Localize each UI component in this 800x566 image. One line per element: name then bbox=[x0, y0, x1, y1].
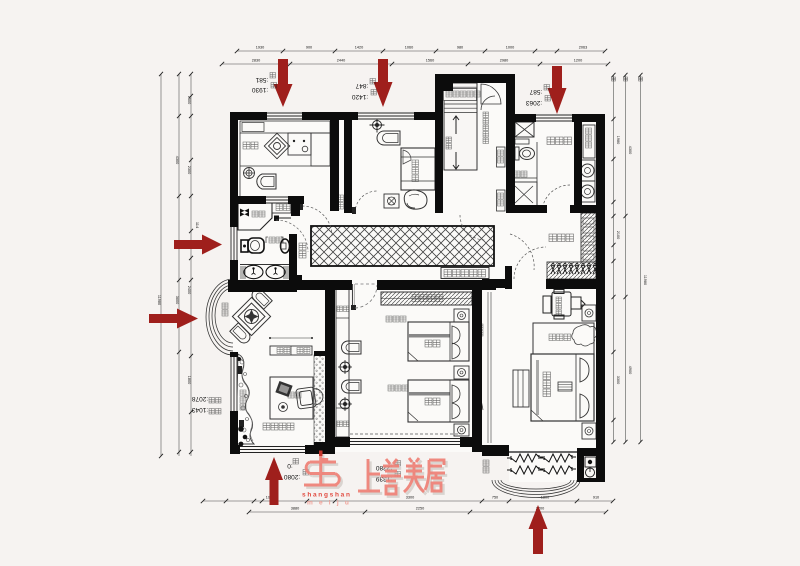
svg-text::2080: :2080 bbox=[283, 473, 300, 480]
svg-text:910: 910 bbox=[593, 496, 599, 500]
svg-text:1560: 1560 bbox=[426, 59, 434, 63]
svg-text:1060: 1060 bbox=[405, 46, 413, 50]
svg-text:1500: 1500 bbox=[187, 96, 191, 104]
svg-text:3600: 3600 bbox=[175, 296, 179, 304]
svg-text::2078: :2078 bbox=[191, 395, 208, 402]
svg-text:1930: 1930 bbox=[256, 46, 264, 50]
svg-text:2830: 2830 bbox=[252, 59, 260, 63]
svg-text::587: :587 bbox=[529, 88, 542, 95]
svg-text::1043: :1043 bbox=[191, 406, 208, 413]
svg-text::2063: :2063 bbox=[525, 99, 542, 106]
svg-text:4300: 4300 bbox=[175, 156, 179, 164]
svg-text:4300: 4300 bbox=[628, 146, 632, 154]
svg-text:2980: 2980 bbox=[500, 59, 508, 63]
svg-text:2063: 2063 bbox=[579, 46, 587, 50]
svg-text:1200: 1200 bbox=[574, 59, 582, 63]
svg-text:3300: 3300 bbox=[406, 496, 414, 500]
svg-text::0: :0 bbox=[287, 462, 293, 469]
svg-text:2100: 2100 bbox=[616, 231, 620, 239]
svg-text:shangshan: shangshan bbox=[302, 492, 352, 499]
svg-text:11980: 11980 bbox=[643, 275, 647, 285]
svg-text:1800: 1800 bbox=[187, 376, 191, 384]
svg-text:900: 900 bbox=[306, 46, 312, 50]
svg-text:2300: 2300 bbox=[187, 166, 191, 174]
svg-text:4900: 4900 bbox=[628, 366, 632, 374]
svg-text:3300: 3300 bbox=[616, 376, 620, 384]
svg-text:1980: 1980 bbox=[616, 136, 620, 144]
svg-text:2250: 2250 bbox=[416, 507, 424, 511]
svg-text:750: 750 bbox=[492, 496, 498, 500]
svg-text:114: 114 bbox=[195, 222, 200, 229]
svg-text:2400: 2400 bbox=[187, 286, 191, 294]
svg-text:1000: 1000 bbox=[506, 46, 514, 50]
svg-text::581: :581 bbox=[255, 76, 268, 83]
svg-text:m e i j u: m e i j u bbox=[307, 500, 351, 507]
svg-text::1420: :1420 bbox=[351, 93, 368, 100]
svg-text:3880: 3880 bbox=[291, 507, 299, 511]
svg-text:1420: 1420 bbox=[355, 46, 363, 50]
svg-text::1930: :1930 bbox=[251, 86, 268, 93]
svg-text:2440: 2440 bbox=[337, 59, 345, 63]
svg-text:11980: 11980 bbox=[157, 295, 161, 305]
svg-text:980: 980 bbox=[457, 46, 463, 50]
svg-text::847: :847 bbox=[355, 82, 368, 89]
